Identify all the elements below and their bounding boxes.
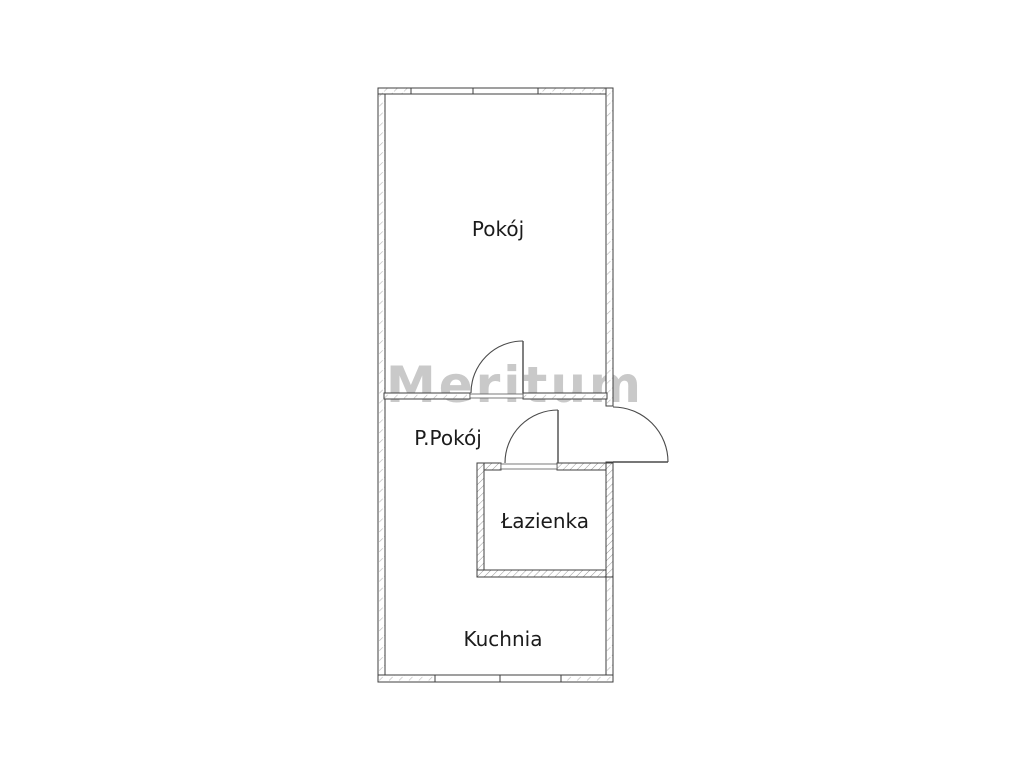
wall-top-right <box>538 88 613 94</box>
divider-wall-left <box>384 393 470 399</box>
room-label-kuchnia: Kuchnia <box>464 627 543 651</box>
room-label-pokoj: Pokój <box>472 217 524 241</box>
room-label-p-pokoj: P.Pokój <box>414 426 482 450</box>
bathroom-wall-right <box>606 463 613 577</box>
floor-plan-svg: Meritum Meritum <box>0 0 1024 768</box>
divider-wall <box>384 393 607 399</box>
bottom-window <box>435 675 561 682</box>
wall-right-upper <box>606 88 613 406</box>
floor-plan-canvas: Meritum Meritum <box>0 0 1024 768</box>
wall-bottom-right <box>561 675 613 682</box>
watermark-text: Meritum <box>386 356 644 414</box>
bathroom-door-sill <box>501 464 557 469</box>
top-window <box>411 88 538 94</box>
bathroom-wall-top-right <box>557 463 613 470</box>
divider-wall-right <box>523 393 607 399</box>
wall-bottom-left <box>378 675 435 682</box>
bathroom-wall-bottom <box>477 570 613 577</box>
wall-top-left <box>378 88 411 94</box>
bathroom-wall-left <box>477 463 484 577</box>
room-label-lazienka: Łazienka <box>500 509 589 533</box>
pokoj-door-sill <box>470 394 523 398</box>
wall-left <box>378 88 385 682</box>
